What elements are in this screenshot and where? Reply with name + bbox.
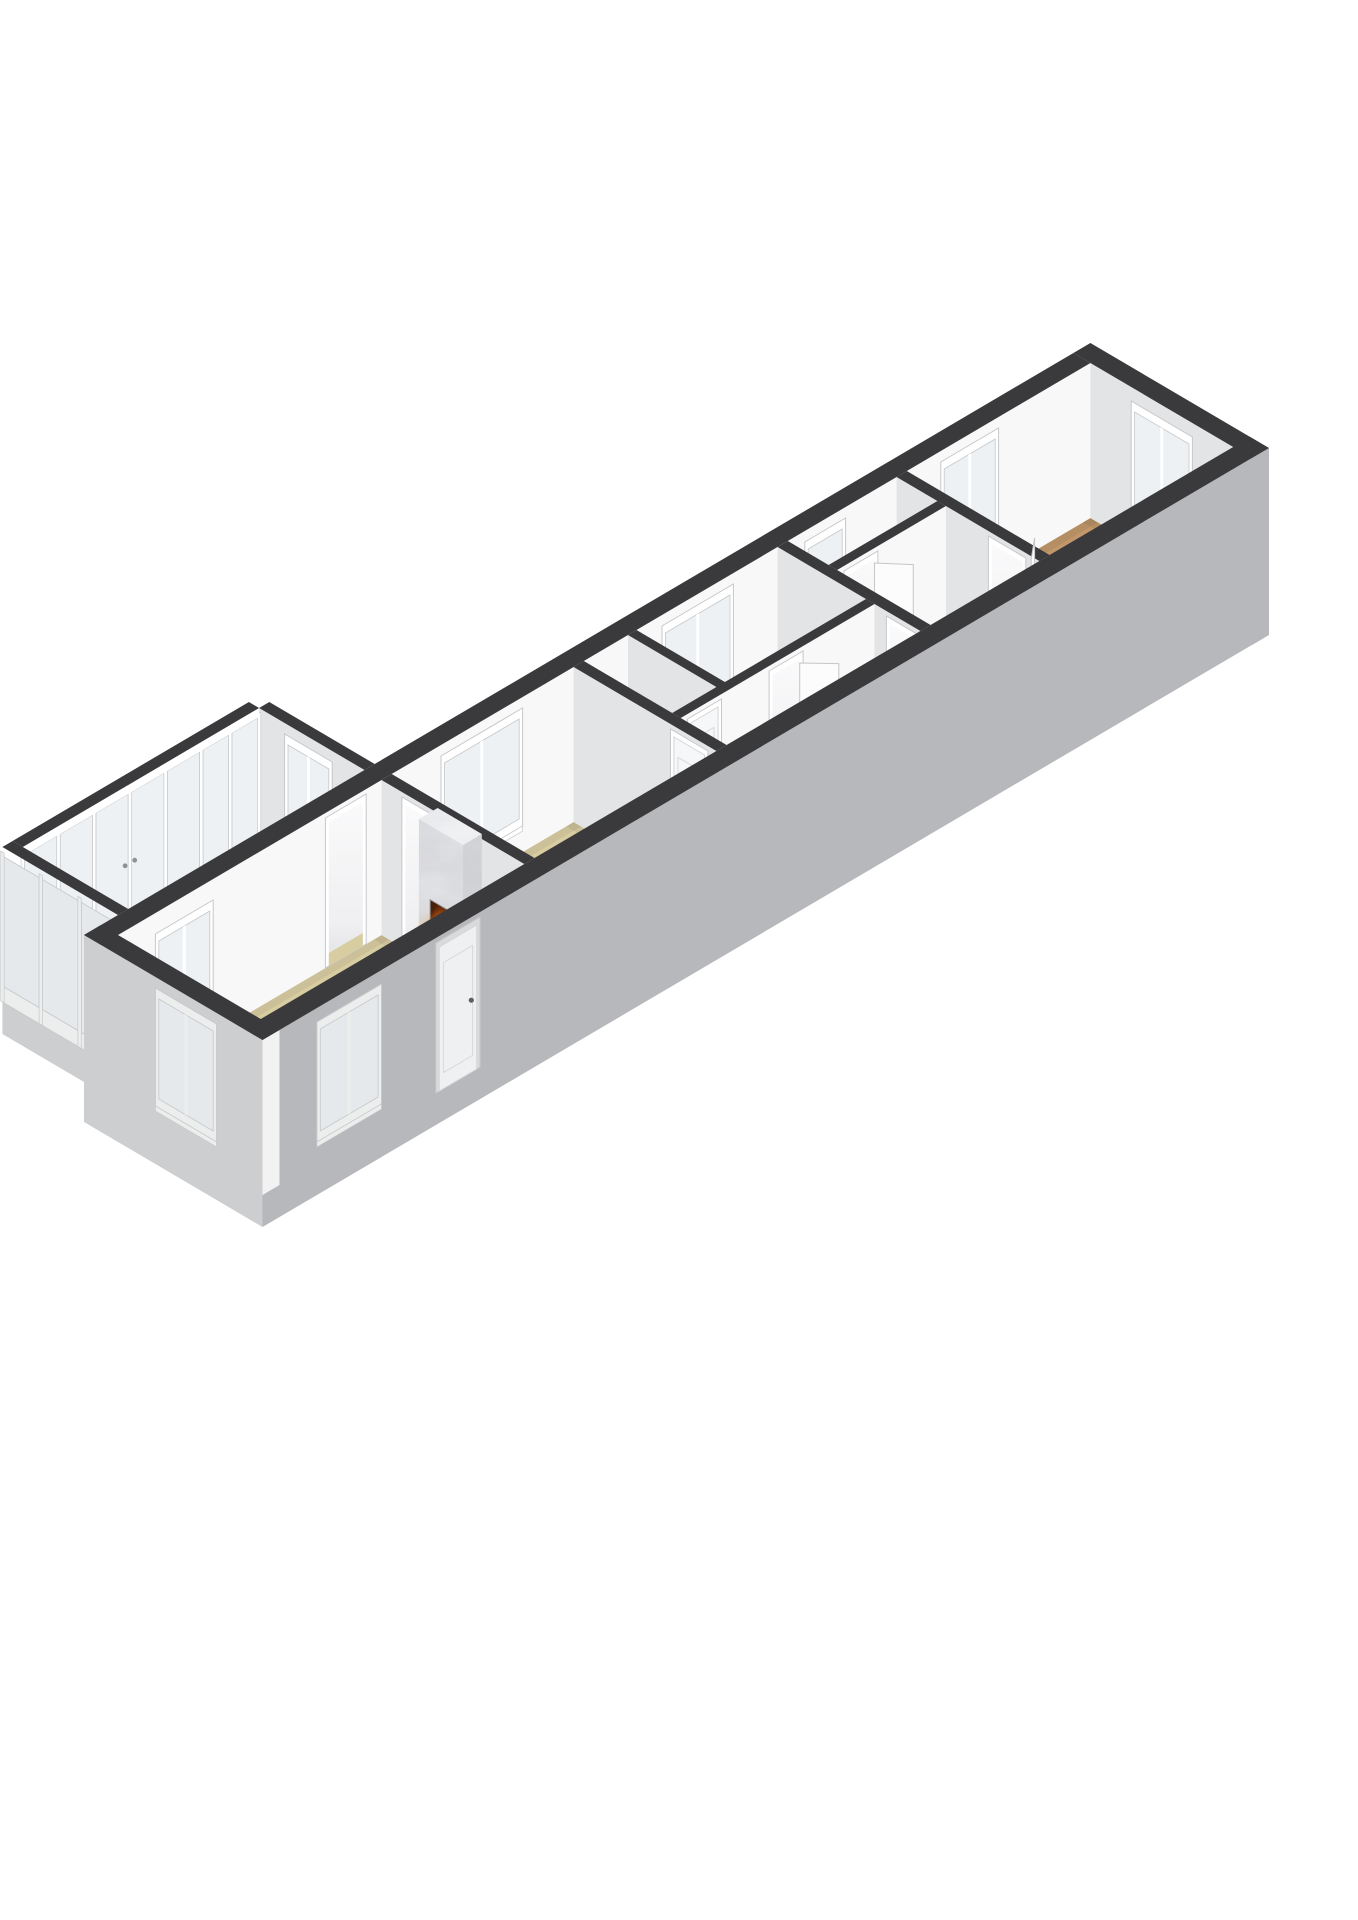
door-handle	[469, 998, 474, 1003]
glazing-glass	[43, 880, 78, 1031]
wall-top-se-long-wall	[244, 437, 1269, 1040]
french-door-handle	[132, 858, 137, 863]
glazing-glass	[4, 857, 39, 1008]
french-door-handle	[123, 863, 128, 868]
floorplan-3d-render	[0, 0, 1358, 1920]
floorplan-canvas	[0, 0, 1358, 1920]
glazing-frame-vertical	[39, 874, 42, 1026]
glazing-frame-vertical	[1, 851, 4, 1003]
glazing-frame-vertical	[78, 896, 81, 1048]
window-mullion	[185, 1014, 188, 1116]
wall-cap-sw-end-wall	[263, 1030, 280, 1195]
door-panel	[439, 925, 476, 1091]
window-mullion	[348, 1011, 351, 1115]
